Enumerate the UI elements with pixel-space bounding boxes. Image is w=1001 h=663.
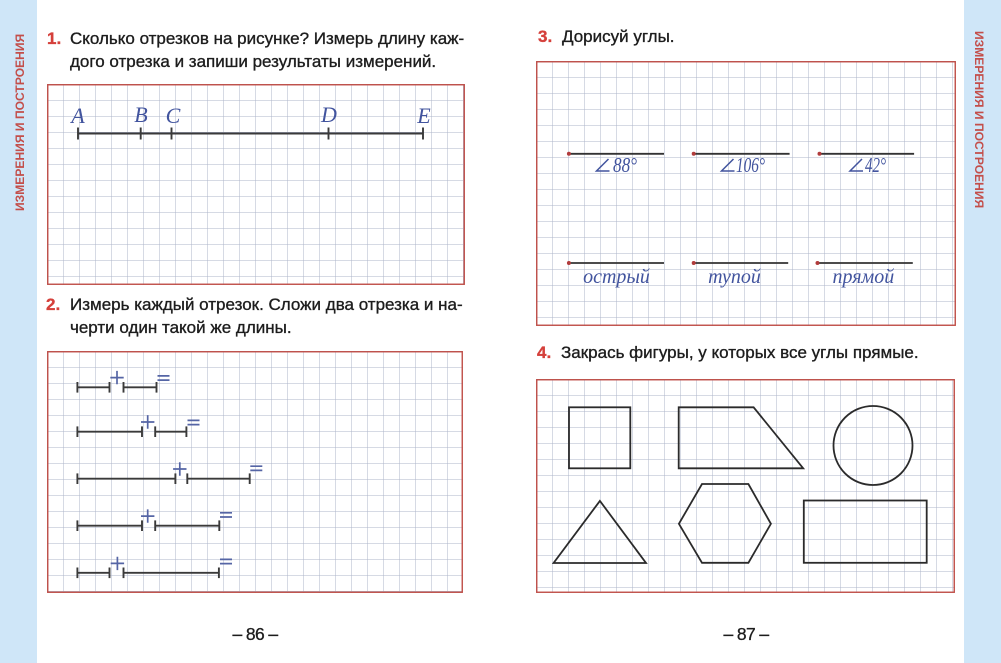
svg-text:C: C [165,103,180,128]
svg-text:острый: острый [583,266,650,288]
svg-text:88°: 88° [613,153,637,177]
svg-text:A: A [69,103,85,128]
svg-text:106°: 106° [736,153,765,177]
svg-text:тупой: тупой [708,266,761,288]
svg-text:E: E [416,103,431,128]
svg-text:42°: 42° [865,153,886,177]
svg-text:D: D [320,102,337,127]
svg-text:прямой: прямой [832,266,894,288]
svg-text:B: B [134,102,147,127]
